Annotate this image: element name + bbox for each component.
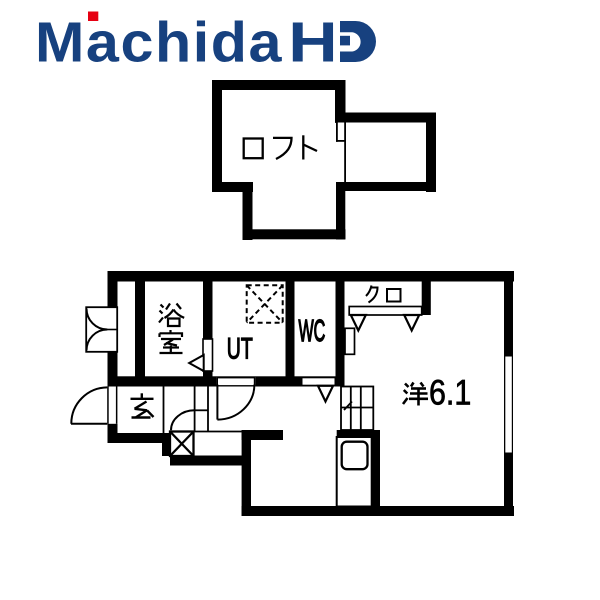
svg-text:H: H	[288, 11, 337, 74]
svg-text:UT: UT	[227, 332, 253, 365]
svg-text:6.1: 6.1	[429, 372, 471, 411]
svg-text:WC: WC	[298, 314, 325, 348]
svg-text:Machida: Machida	[35, 11, 283, 75]
